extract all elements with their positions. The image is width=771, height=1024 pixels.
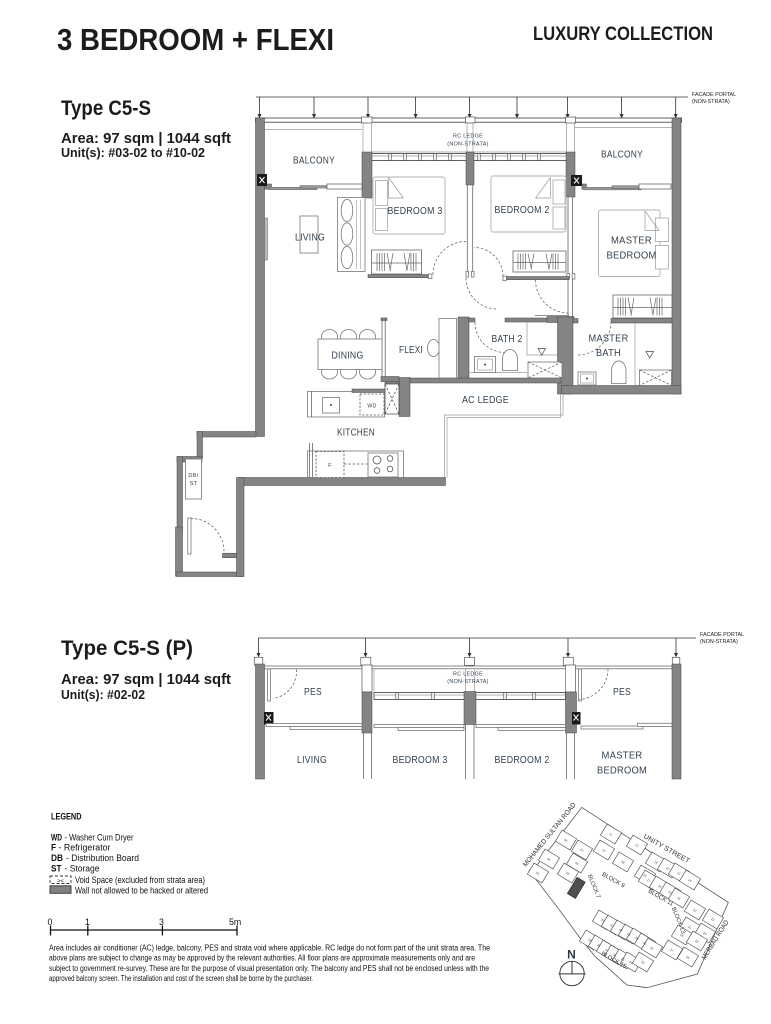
svg-text:Type C5-S (P): Type C5-S (P) — [61, 636, 193, 660]
svg-text:BEDROOM: BEDROOM — [607, 250, 657, 262]
svg-text:above plans are subject to cha: above plans are subject to change as may… — [49, 954, 475, 963]
svg-text:BLOCK 7: BLOCK 7 — [586, 874, 601, 899]
svg-text:Type C5-S: Type C5-S — [61, 96, 151, 120]
svg-text:Area: 97 sqm | 1044 sqft: Area: 97 sqm | 1044 sqft — [61, 130, 231, 147]
svg-text:- Refrigerator: - Refrigerator — [59, 843, 111, 853]
svg-text:Area: 97 sqm | 1044 sqft: Area: 97 sqm | 1044 sqft — [61, 671, 231, 688]
svg-text:BEDROOM: BEDROOM — [597, 765, 647, 777]
svg-text:RC LEDGE: RC LEDGE — [453, 134, 483, 140]
svg-text:WD: WD — [51, 832, 62, 842]
svg-text:MASTER: MASTER — [602, 750, 643, 762]
svg-text:KITCHEN: KITCHEN — [337, 428, 375, 439]
svg-text:BATH: BATH — [596, 348, 621, 359]
svg-text:DB/: DB/ — [188, 473, 198, 479]
svg-text:AC LEDGE: AC LEDGE — [462, 395, 509, 406]
svg-text:LIVING: LIVING — [295, 233, 325, 244]
svg-text:Wall not allowed to be hacked: Wall not allowed to be hacked or altered — [75, 885, 208, 895]
svg-text:PES: PES — [304, 687, 322, 698]
svg-text:FACADE PORTAL: FACADE PORTAL — [692, 92, 736, 98]
svg-text:(NON-STRATA): (NON-STRATA) — [447, 679, 488, 685]
svg-text:><: >< — [57, 878, 64, 884]
svg-text:Void Space (excluded from stra: Void Space (excluded from strata area) — [75, 875, 205, 885]
svg-text:LIVING: LIVING — [297, 755, 327, 766]
svg-text:- Washer Cum Dryer: - Washer Cum Dryer — [65, 832, 134, 842]
svg-text:- Storage: - Storage — [65, 863, 100, 873]
svg-text:5m: 5m — [229, 917, 241, 927]
svg-text:N: N — [567, 948, 576, 962]
svg-text:Area includes air conditioner: Area includes air conditioner (AC) ledge… — [49, 944, 490, 953]
svg-text:F: F — [51, 843, 57, 853]
svg-text:MASTER: MASTER — [589, 334, 629, 345]
svg-text:BALCONY: BALCONY — [601, 150, 643, 161]
svg-text:(NON-STRATA): (NON-STRATA) — [447, 142, 488, 148]
svg-text:FACADE PORTAL: FACADE PORTAL — [700, 632, 744, 638]
svg-text:(NON-STRATA): (NON-STRATA) — [700, 639, 738, 645]
svg-text:BATH 2: BATH 2 — [492, 334, 523, 345]
svg-text:BLOCK 9: BLOCK 9 — [601, 872, 626, 890]
svg-text:BEDROOM 3: BEDROOM 3 — [393, 754, 448, 766]
svg-text:LEGEND: LEGEND — [51, 812, 82, 822]
svg-text:subject to government re-surve: subject to government re-survey. These a… — [49, 964, 489, 973]
svg-text:F: F — [328, 463, 331, 469]
svg-text:DINING: DINING — [332, 351, 364, 362]
svg-text:approved balcony screen. The i: approved balcony screen. The installatio… — [49, 974, 313, 983]
svg-text:BEDROOM 2: BEDROOM 2 — [495, 754, 550, 766]
svg-text:3: 3 — [159, 917, 164, 927]
svg-text:BEDROOM 2: BEDROOM 2 — [495, 204, 550, 216]
svg-text:DB: DB — [51, 853, 63, 863]
svg-text:WD: WD — [367, 404, 376, 410]
svg-text:ST: ST — [190, 481, 198, 487]
svg-text:(NON-STRATA): (NON-STRATA) — [692, 99, 730, 105]
svg-text:Unit(s): #02-02: Unit(s): #02-02 — [61, 688, 145, 702]
svg-text:MASTER: MASTER — [611, 235, 652, 247]
svg-text:BALCONY: BALCONY — [293, 156, 335, 167]
svg-text:RC LEDGE: RC LEDGE — [453, 672, 483, 678]
svg-text:BEDROOM 3: BEDROOM 3 — [388, 205, 443, 217]
svg-text:FLEXI: FLEXI — [399, 345, 423, 356]
svg-text:Unit(s): #03-02 to #10-02: Unit(s): #03-02 to #10-02 — [61, 146, 205, 160]
svg-text:3 BEDROOM + FLEXI: 3 BEDROOM + FLEXI — [57, 22, 334, 57]
svg-text:- Distribution Board: - Distribution Board — [66, 853, 139, 863]
svg-text:ST: ST — [51, 863, 62, 873]
svg-text:LUXURY COLLECTION: LUXURY COLLECTION — [533, 24, 713, 45]
svg-text:PES: PES — [613, 687, 631, 698]
